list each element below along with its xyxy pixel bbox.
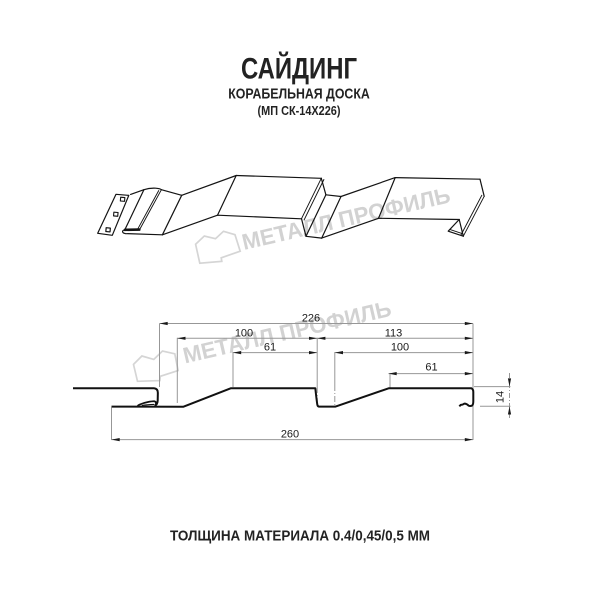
svg-text:КОРАБЕЛЬНАЯ ДОСКА: КОРАБЕЛЬНАЯ ДОСКА bbox=[228, 87, 370, 103]
svg-text:14: 14 bbox=[495, 391, 507, 403]
svg-text:ТОЛЩИНА МАТЕРИАЛА 0.4/0,45/0,5: ТОЛЩИНА МАТЕРИАЛА 0.4/0,45/0,5 ММ bbox=[170, 528, 430, 545]
svg-text:226: 226 bbox=[302, 313, 320, 325]
svg-text:100: 100 bbox=[235, 327, 253, 339]
svg-text:260: 260 bbox=[281, 429, 299, 441]
svg-text:САЙДИНГ: САЙДИНГ bbox=[241, 52, 357, 86]
svg-text:61: 61 bbox=[264, 342, 276, 354]
svg-text:113: 113 bbox=[385, 327, 403, 339]
svg-text:(МП СК-14Х226): (МП СК-14Х226) bbox=[258, 104, 341, 118]
svg-text:61: 61 bbox=[425, 362, 437, 374]
svg-text:100: 100 bbox=[391, 342, 409, 354]
